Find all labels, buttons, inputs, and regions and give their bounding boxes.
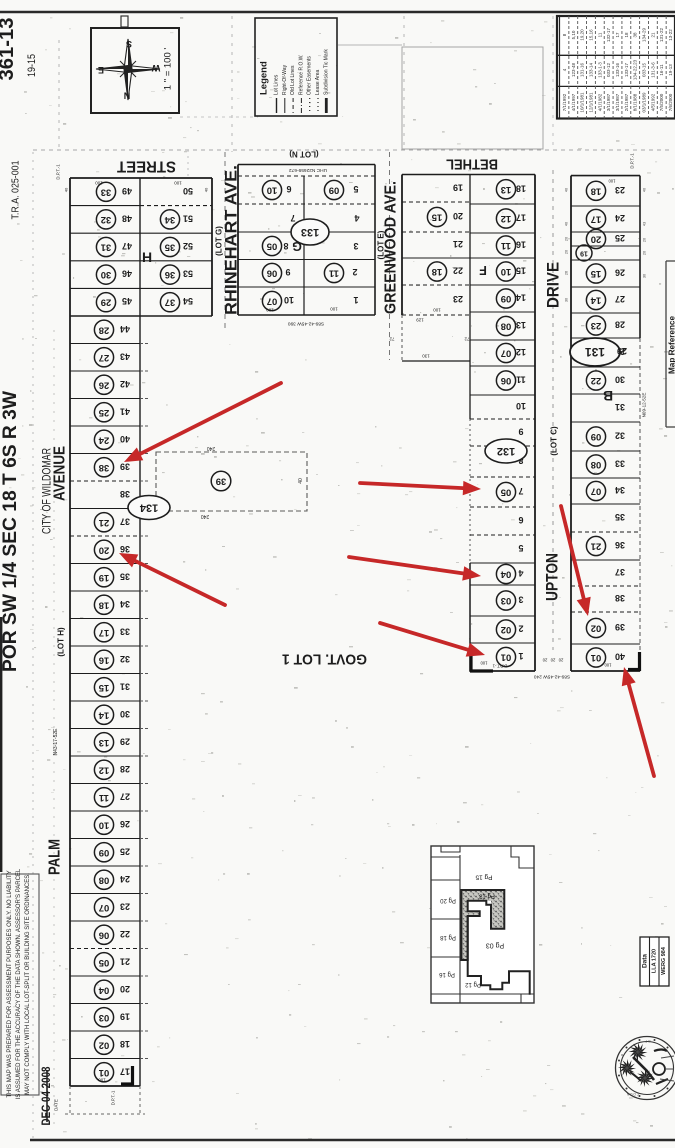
svg-text:19: 19 [120, 1011, 130, 1021]
svg-text:Pg 20: Pg 20 [440, 897, 456, 903]
svg-text:26: 26 [99, 379, 110, 390]
svg-text:10: 10 [284, 295, 294, 305]
svg-text:38: 38 [99, 462, 110, 473]
svg-text:100: 100 [604, 663, 612, 668]
svg-text:38: 38 [120, 489, 130, 499]
svg-text:31: 31 [120, 681, 130, 691]
svg-text:2: 2 [352, 267, 357, 277]
svg-text:36: 36 [165, 269, 176, 280]
svg-text:BETHEL: BETHEL [446, 156, 498, 173]
svg-text:131-3-6: 131-3-6 [650, 62, 655, 78]
svg-text:30: 30 [643, 274, 647, 278]
svg-text:D.P.T.-1: D.P.T.-1 [111, 1090, 116, 1105]
svg-text:100: 100 [98, 1078, 106, 1083]
svg-text:29: 29 [617, 346, 627, 356]
svg-text:5: 5 [353, 184, 358, 194]
svg-text:4: 4 [354, 213, 359, 223]
svg-text:05: 05 [500, 487, 511, 498]
svg-text:51: 51 [183, 213, 193, 223]
svg-text:37: 37 [120, 516, 130, 526]
svg-text:Reference R.O.W.: Reference R.O.W. [298, 54, 304, 95]
svg-text:132: 132 [497, 445, 515, 457]
svg-text:D.P.T.-1: D.P.T.-1 [492, 664, 507, 669]
svg-text:10: 10 [501, 266, 512, 277]
svg-text:7: 7 [290, 213, 295, 223]
svg-text:134-22,23: 134-22,23 [633, 59, 638, 80]
svg-text:07: 07 [99, 902, 110, 913]
svg-text:37: 37 [615, 567, 625, 577]
svg-text:H: H [142, 249, 152, 265]
svg-text:T.R.A. 025-001: T.R.A. 025-001 [11, 160, 22, 219]
svg-text:39: 39 [216, 476, 227, 487]
svg-text:19: 19 [453, 182, 463, 192]
svg-text:16-11: 16-11 [659, 64, 664, 76]
svg-text:E: E [98, 65, 104, 75]
svg-text:7: 7 [518, 486, 523, 496]
svg-text:17: 17 [99, 627, 110, 638]
svg-text:21: 21 [590, 541, 601, 552]
svg-text:27: 27 [99, 352, 110, 363]
svg-text:08: 08 [501, 321, 512, 332]
svg-text:19-15: 19-15 [26, 54, 38, 77]
svg-text:1: 1 [353, 295, 358, 305]
svg-text:30: 30 [565, 298, 569, 302]
svg-text:06: 06 [99, 929, 110, 940]
svg-text:N43-17-52E: N43-17-52E [53, 728, 59, 756]
svg-text:11: 11 [500, 240, 511, 251]
svg-text:AVENUE: AVENUE [52, 446, 69, 501]
svg-text:100: 100 [480, 661, 488, 666]
svg-text:C O U N: C O U N [626, 1092, 639, 1096]
svg-text:09: 09 [329, 185, 340, 196]
svg-text:30: 30 [615, 375, 625, 385]
svg-text:43: 43 [120, 351, 130, 361]
svg-text:48: 48 [122, 213, 132, 223]
svg-text:15: 15 [98, 682, 109, 693]
svg-text:21: 21 [650, 32, 655, 38]
svg-text:CITY OF WILDOMAR: CITY OF WILDOMAR [42, 448, 54, 534]
svg-text:7/1/1992: 7/1/1992 [562, 93, 567, 111]
svg-text:29: 29 [101, 297, 112, 308]
svg-text:13: 13 [516, 320, 526, 330]
svg-text:02: 02 [99, 1039, 110, 1050]
svg-text:33: 33 [101, 186, 112, 197]
svg-text:20: 20 [550, 658, 555, 663]
svg-text:29: 29 [120, 736, 130, 746]
svg-text:123-48: 123-48 [571, 62, 576, 77]
svg-text:40: 40 [565, 188, 569, 192]
svg-text:04: 04 [98, 984, 109, 995]
svg-text:Pg 15: Pg 15 [475, 874, 492, 881]
svg-text:37: 37 [165, 297, 176, 308]
svg-text:D.P.T.-1: D.P.T.-1 [56, 164, 61, 180]
svg-text:72: 72 [464, 337, 470, 342]
svg-text:15,16: 15,16 [588, 29, 593, 41]
svg-text:20: 20 [558, 658, 563, 663]
svg-text:03: 03 [501, 595, 512, 606]
svg-text:(LOT N): (LOT N) [289, 150, 319, 159]
svg-text:WERG 984: WERG 984 [661, 946, 667, 975]
svg-text:S89-42-45W 390: S89-42-45W 390 [288, 321, 325, 327]
svg-text:19: 19 [580, 250, 588, 257]
svg-text:17: 17 [120, 1066, 130, 1076]
svg-text:23: 23 [120, 901, 130, 911]
svg-text:42: 42 [120, 379, 130, 389]
svg-text:33: 33 [615, 459, 625, 469]
svg-text:S89-42-45W 240: S89-42-45W 240 [534, 674, 571, 680]
svg-text:IS ASSUMED FOR THE ACCURACY OF: IS ASSUMED FOR THE ACCURACY OF THE DATA … [16, 868, 22, 1099]
svg-text:LLA 1720: LLA 1720 [652, 949, 658, 973]
svg-text:Pg 03: Pg 03 [486, 942, 504, 949]
svg-text:UPTON: UPTON [544, 553, 562, 601]
svg-text:01: 01 [500, 652, 511, 663]
svg-text:22: 22 [120, 929, 130, 939]
svg-text:STREET: STREET [116, 158, 176, 175]
svg-text:133-14: 133-14 [588, 62, 593, 77]
svg-text:03: 03 [99, 1012, 110, 1023]
svg-text:05: 05 [98, 957, 109, 968]
svg-text:03/1/1989: 03/1/1989 [642, 92, 647, 113]
svg-text:23: 23 [591, 320, 602, 331]
svg-text:19,20: 19,20 [580, 29, 585, 41]
svg-text:39: 39 [120, 461, 130, 471]
svg-text:100: 100 [608, 179, 616, 184]
svg-text:22: 22 [591, 375, 602, 386]
svg-text:6: 6 [286, 184, 291, 194]
svg-text:53: 53 [183, 269, 193, 279]
svg-text:20: 20 [565, 237, 569, 241]
svg-text:40: 40 [204, 187, 209, 192]
svg-text:36: 36 [120, 544, 130, 554]
svg-text:100: 100 [433, 308, 441, 313]
svg-text:UHC N22659-672: UHC N22659-672 [289, 167, 327, 173]
svg-text:2/1/1987: 2/1/1987 [624, 93, 629, 111]
svg-text:09: 09 [591, 431, 602, 442]
svg-text:24: 24 [120, 874, 130, 884]
svg-text:26: 26 [615, 268, 625, 278]
svg-text:THIS MAP WAS PREPARED FOR ASSE: THIS MAP WAS PREPARED FOR ASSESSMENT PUR… [7, 870, 13, 1097]
svg-text:2: 2 [518, 624, 523, 634]
svg-text:39: 39 [615, 622, 625, 632]
svg-text:32: 32 [101, 214, 112, 225]
svg-text:D.P.T.-1: D.P.T.-1 [630, 153, 635, 169]
svg-text:09: 09 [99, 847, 110, 858]
svg-text:18: 18 [624, 32, 629, 38]
svg-text:Lot Lines: Lot Lines [274, 74, 280, 95]
svg-text:21: 21 [120, 956, 130, 966]
svg-text:1: 1 [518, 651, 523, 661]
svg-text:7/6/2000: 7/6/2000 [668, 93, 673, 111]
svg-text:240: 240 [201, 513, 210, 519]
svg-text:32: 32 [120, 654, 130, 664]
svg-text:18: 18 [591, 185, 602, 196]
svg-text:08: 08 [99, 874, 110, 885]
svg-text:20: 20 [120, 984, 130, 994]
svg-text:(LOT E): (LOT E) [377, 230, 386, 259]
svg-text:132-17: 132-17 [606, 27, 611, 42]
svg-text:22: 22 [453, 266, 463, 276]
svg-text:10: 10 [99, 819, 110, 830]
svg-text:34: 34 [164, 214, 175, 225]
svg-text:13: 13 [501, 184, 512, 195]
svg-text:06: 06 [501, 375, 512, 386]
svg-text:4/1/1982: 4/1/1982 [597, 93, 602, 111]
svg-text:40: 40 [565, 222, 569, 226]
svg-text:Data: Data [642, 954, 649, 968]
svg-text:40: 40 [298, 478, 304, 484]
svg-text:33: 33 [120, 626, 130, 636]
svg-text:41: 41 [120, 406, 130, 416]
svg-text:10: 10 [516, 401, 526, 411]
svg-text:5: 5 [518, 543, 523, 553]
svg-text:27: 27 [120, 791, 130, 801]
svg-text:13: 13 [99, 737, 110, 748]
svg-text:72: 72 [389, 337, 395, 342]
svg-text:GOVT. LOT 1: GOVT. LOT 1 [282, 651, 367, 668]
svg-text:133-16: 133-16 [615, 62, 620, 77]
svg-text:Legend: Legend [259, 61, 270, 95]
svg-text:Old Lot Lines: Old Lot Lines [290, 65, 296, 95]
svg-text:134-29: 134-29 [642, 27, 647, 42]
svg-text:24: 24 [615, 213, 625, 223]
svg-text:10: 10 [267, 185, 278, 196]
svg-text:100: 100 [174, 181, 182, 186]
svg-text:16: 16 [516, 240, 526, 250]
svg-text:Pg 13: Pg 13 [479, 893, 495, 899]
svg-text:28: 28 [120, 764, 130, 774]
svg-text:47: 47 [122, 241, 132, 251]
svg-text:N09-12-52E: N09-12-52E [642, 393, 647, 418]
svg-text:S: S [126, 39, 132, 49]
svg-text:5,10: 5,10 [571, 30, 576, 39]
svg-text:20: 20 [542, 658, 547, 663]
svg-text:12/1/1981: 12/1/1981 [588, 92, 593, 113]
svg-text:130: 130 [422, 354, 430, 359]
svg-text:52: 52 [183, 241, 193, 251]
svg-text:POR SW 1/4 SEC 18 T 6S R 3W: POR SW 1/4 SEC 18 T 6S R 3W [0, 391, 21, 672]
svg-text:4/5/1992: 4/5/1992 [650, 93, 655, 111]
svg-text:04: 04 [500, 569, 511, 580]
svg-text:131-16: 131-16 [580, 62, 585, 77]
svg-text:20: 20 [453, 211, 463, 221]
svg-text:38: 38 [633, 32, 638, 38]
svg-text:31: 31 [615, 402, 625, 412]
svg-text:361-13: 361-13 [0, 18, 18, 81]
svg-text:40: 40 [615, 652, 625, 662]
svg-text:18: 18 [432, 266, 443, 277]
svg-text:(LOT G): (LOT G) [215, 226, 224, 256]
svg-text:17: 17 [591, 214, 602, 225]
svg-text:7/5/2000: 7/5/2000 [659, 93, 664, 111]
svg-text:18: 18 [120, 1039, 130, 1049]
svg-text:27: 27 [615, 294, 625, 304]
svg-text:28: 28 [615, 320, 625, 330]
svg-text:131-22: 131-22 [659, 27, 664, 42]
svg-text:08: 08 [591, 459, 602, 470]
svg-text:34: 34 [120, 599, 130, 609]
svg-text:43: 43 [643, 222, 647, 226]
svg-text:DATE: DATE [54, 1099, 59, 1111]
svg-text:F: F [479, 263, 487, 277]
svg-text:35: 35 [164, 242, 175, 253]
svg-text:26: 26 [565, 271, 569, 275]
svg-text:02: 02 [591, 623, 602, 634]
svg-text:14: 14 [516, 293, 526, 303]
svg-text:MAY NOT COMPLY WITH LOCAL LOT-: MAY NOT COMPLY WITH LOCAL LOT-SPLIT OR B… [25, 873, 31, 1095]
svg-text:06: 06 [267, 268, 278, 279]
svg-text:15: 15 [431, 212, 442, 223]
svg-text:25: 25 [98, 407, 109, 418]
svg-text:20: 20 [591, 234, 602, 245]
svg-text:54: 54 [183, 296, 193, 306]
svg-text:Subdivision Tic Mark: Subdivision Tic Mark [323, 49, 329, 95]
svg-text:18: 18 [516, 183, 526, 193]
svg-text:19-13: 19-13 [668, 64, 673, 76]
svg-text:15: 15 [590, 268, 601, 279]
svg-text:3/1/1987: 3/1/1987 [615, 93, 620, 111]
svg-text:35: 35 [120, 571, 130, 581]
svg-text:6: 6 [518, 515, 523, 525]
svg-text:40: 40 [643, 188, 647, 192]
svg-text:11: 11 [516, 375, 526, 385]
svg-text:3: 3 [518, 595, 523, 605]
svg-text:G: G [292, 239, 302, 253]
svg-text:11: 11 [597, 32, 602, 37]
svg-text:(LOT C): (LOT C) [550, 426, 559, 456]
svg-text:40: 40 [64, 187, 69, 192]
svg-text:23: 23 [615, 185, 625, 195]
svg-text:30: 30 [120, 709, 130, 719]
svg-text:28: 28 [99, 324, 110, 335]
svg-text:02: 02 [501, 624, 512, 635]
svg-text:20: 20 [99, 544, 110, 555]
svg-text:Pg 16: Pg 16 [439, 971, 455, 977]
svg-text:1 " = 100 ': 1 " = 100 ' [163, 48, 174, 91]
svg-text:30: 30 [101, 269, 112, 280]
svg-text:11: 11 [328, 268, 339, 279]
svg-text:129: 129 [416, 318, 424, 323]
svg-text:23: 23 [453, 294, 463, 304]
svg-text:O F: O F [645, 1039, 650, 1043]
svg-text:45: 45 [122, 296, 132, 306]
svg-text:033-15: 033-15 [642, 62, 647, 77]
svg-text:34: 34 [615, 485, 625, 495]
svg-text:26: 26 [120, 819, 130, 829]
svg-text:12: 12 [501, 213, 512, 224]
svg-text:05: 05 [266, 241, 277, 252]
svg-text:01: 01 [590, 652, 601, 663]
svg-text:15: 15 [516, 266, 526, 276]
svg-text:Pg 12: Pg 12 [465, 981, 481, 987]
svg-text:Lease Area: Lease Area [315, 69, 321, 95]
svg-text:21: 21 [98, 517, 109, 528]
svg-text:DRIVE: DRIVE [545, 262, 563, 308]
svg-text:44: 44 [120, 324, 130, 334]
svg-text:50: 50 [183, 186, 193, 196]
svg-text:8: 8 [283, 241, 288, 251]
svg-text:133-1-3: 133-1-3 [597, 62, 602, 78]
svg-text:033-12: 033-12 [606, 62, 611, 77]
svg-text:10/1/1981: 10/1/1981 [580, 92, 585, 113]
svg-text:49: 49 [122, 186, 132, 196]
svg-text:9: 9 [285, 267, 290, 277]
svg-text:07: 07 [267, 296, 278, 307]
svg-text:133: 133 [301, 226, 319, 238]
svg-text:09: 09 [501, 293, 512, 304]
svg-text:131: 131 [585, 345, 605, 359]
svg-text:31: 31 [100, 242, 111, 253]
svg-text:36: 36 [615, 540, 625, 550]
svg-text:8/1/1988: 8/1/1988 [633, 93, 638, 111]
svg-text:40: 40 [120, 434, 130, 444]
svg-text:Right-Of-Way: Right-Of-Way [282, 64, 288, 95]
svg-text:38: 38 [615, 593, 625, 603]
svg-text:Map Reference: Map Reference [667, 316, 675, 374]
svg-text:9: 9 [518, 427, 523, 437]
svg-text:133-17: 133-17 [624, 62, 629, 77]
svg-text:(LOT H): (LOT H) [57, 627, 66, 657]
svg-text:B: B [603, 388, 613, 404]
svg-text:20: 20 [643, 238, 647, 242]
svg-text:19: 19 [99, 572, 110, 583]
svg-text:100: 100 [266, 308, 274, 313]
svg-text:N: N [124, 91, 131, 101]
svg-text:100: 100 [330, 307, 338, 312]
svg-text:134: 134 [139, 502, 158, 514]
svg-text:17: 17 [516, 213, 526, 223]
svg-text:25: 25 [120, 846, 130, 856]
svg-text:W: W [151, 63, 160, 73]
svg-text:17: 17 [615, 32, 620, 38]
svg-text:3: 3 [353, 241, 358, 251]
svg-text:240: 240 [207, 445, 216, 451]
svg-text:13-22: 13-22 [668, 29, 673, 41]
svg-text:24: 24 [98, 434, 109, 445]
svg-text:11: 11 [98, 792, 109, 803]
svg-text:07: 07 [591, 486, 602, 497]
svg-text:14: 14 [590, 295, 601, 306]
svg-text:18: 18 [99, 599, 110, 610]
svg-text:Other Easements: Other Easements [307, 56, 313, 95]
svg-text:01: 01 [98, 1067, 109, 1078]
svg-text:100: 100 [95, 181, 103, 186]
svg-text:4: 4 [518, 568, 523, 578]
svg-text:35: 35 [615, 512, 625, 522]
svg-text:46: 46 [122, 269, 132, 279]
svg-text:20: 20 [643, 251, 647, 255]
svg-text:4/1/1997: 4/1/1997 [571, 93, 576, 111]
svg-text:12: 12 [99, 764, 110, 775]
svg-text:PALM: PALM [47, 839, 64, 875]
svg-text:Pg 18: Pg 18 [440, 934, 456, 940]
svg-text:25: 25 [615, 233, 625, 243]
svg-text:3/1/1987: 3/1/1987 [606, 93, 611, 111]
svg-text:14: 14 [98, 709, 109, 720]
svg-text:12: 12 [516, 347, 526, 357]
svg-text:32: 32 [615, 431, 625, 441]
svg-text:DEC 04 2008: DEC 04 2008 [39, 1066, 53, 1125]
svg-text:16: 16 [99, 654, 110, 665]
svg-text:20: 20 [565, 250, 569, 254]
svg-text:07: 07 [501, 348, 512, 359]
svg-text:21: 21 [453, 239, 463, 249]
